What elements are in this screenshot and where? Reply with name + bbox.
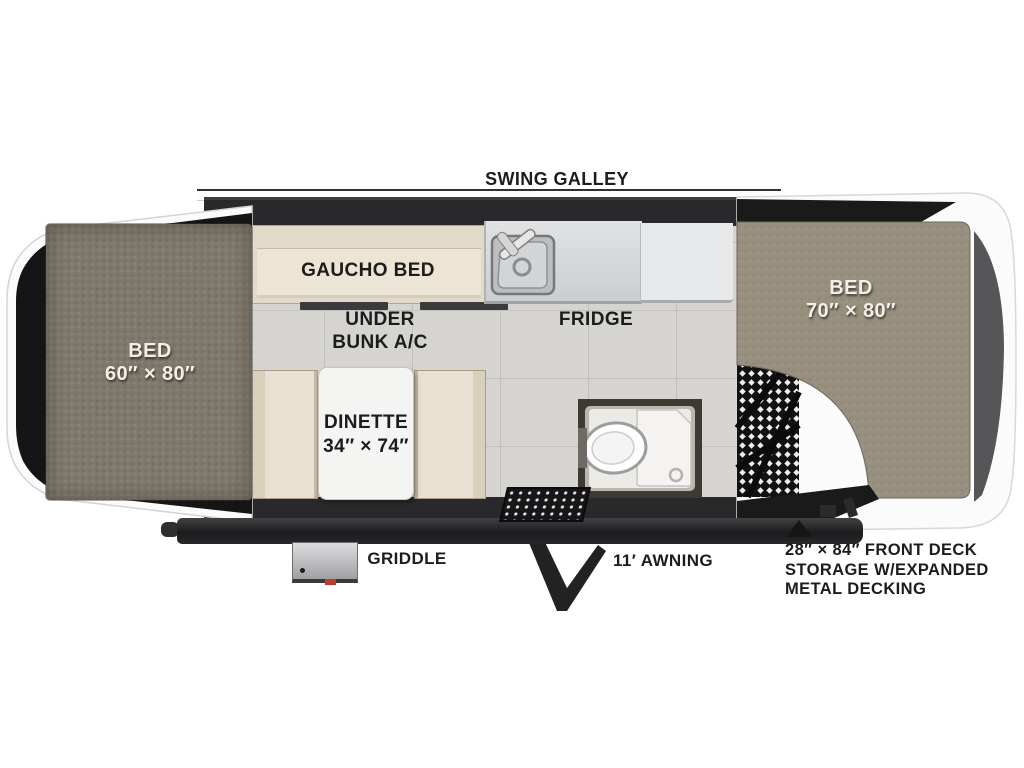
bed-right-line2: 70″ × 80″ [806, 300, 896, 323]
mesh-decking [737, 356, 799, 497]
entry-fold-step [527, 538, 606, 611]
bed-left-line2: 60″ × 80″ [105, 363, 195, 386]
bed-right-line1: BED [806, 277, 896, 300]
swing-galley-label: SWING GALLEY [485, 169, 629, 190]
dinette-line1: DINETTE [323, 411, 409, 435]
gaucho-bed-label: GAUCHO BED [301, 260, 435, 282]
entry-step-grate [499, 487, 591, 522]
front-deck-storage-label: 28″ × 84″ FRONT DECK STORAGE W/EXPANDED … [785, 541, 989, 600]
under-bunk-line2: BUNK A/C [332, 331, 427, 354]
floorplan-canvas: SWING GALLEY GAUCHO BED UNDER BUNK A/C F… [0, 0, 1024, 768]
toilet-shower [578, 399, 702, 498]
front-deck-line3: METAL DECKING [785, 580, 989, 600]
griddle-label: GRIDDLE [367, 549, 446, 569]
bed-right-label: BED 70″ × 80″ [806, 277, 896, 323]
bed-left-label: BED 60″ × 80″ [105, 340, 195, 386]
awning-label: 11′ AWNING [613, 551, 713, 571]
up-arrow-icon [786, 520, 812, 537]
dinette-label: DINETTE 34″ × 74″ [323, 411, 409, 459]
front-deck-line1: 28″ × 84″ FRONT DECK [785, 541, 989, 561]
griddle-box [292, 542, 358, 583]
front-deck-line2: STORAGE W/EXPANDED [785, 561, 989, 581]
dinette-line2: 34″ × 74″ [323, 435, 409, 459]
under-bunk-ac-label: UNDER BUNK A/C [332, 308, 427, 354]
bed-left-line1: BED [105, 340, 195, 363]
galley-sink [492, 228, 554, 294]
under-bunk-line1: UNDER [332, 308, 427, 331]
fridge-label: FRIDGE [559, 309, 633, 331]
